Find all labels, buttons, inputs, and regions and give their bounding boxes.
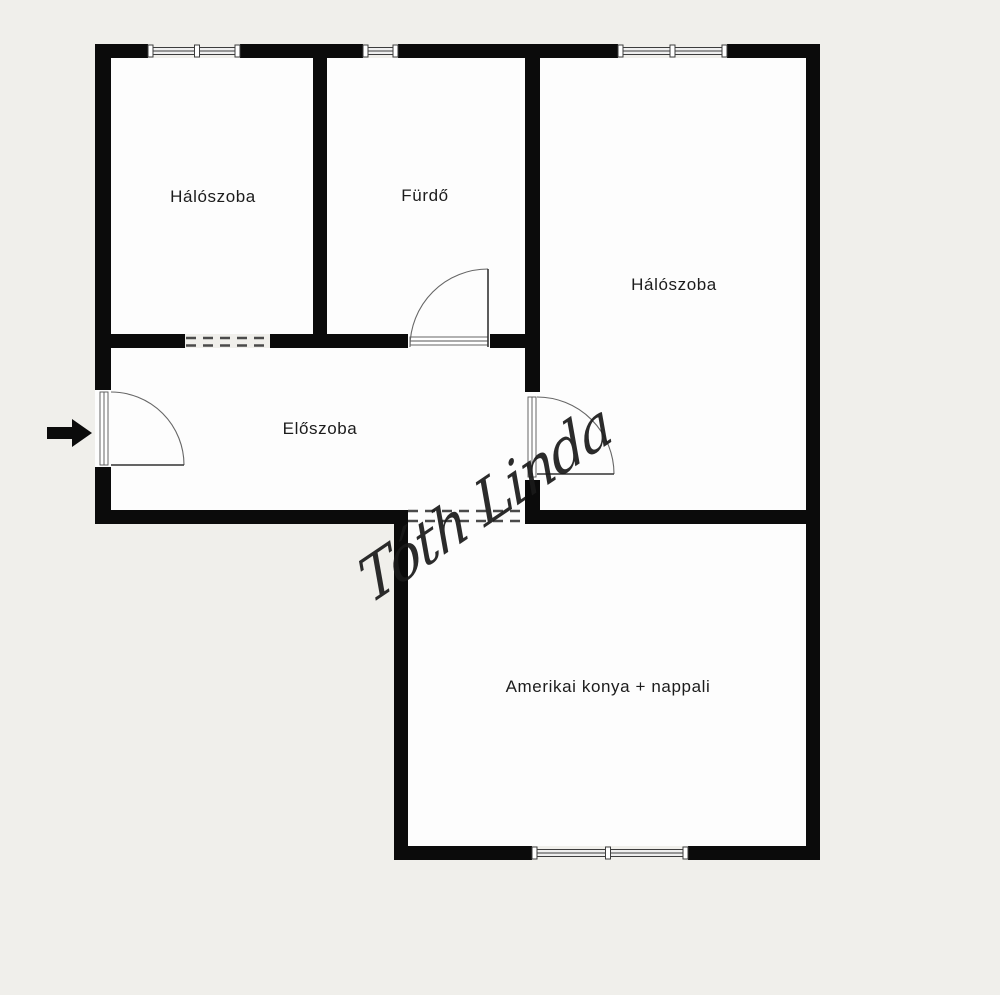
wall-bottom-1 (394, 846, 532, 860)
window-bathroom (363, 45, 398, 57)
wall-mid-2 (270, 334, 408, 348)
wall-bedroom1-bathroom (313, 44, 327, 348)
wall-right (806, 44, 820, 860)
room-label-hallway: Előszoba (283, 419, 358, 439)
room-interiors (95, 58, 806, 846)
wall-bedroom2-upper (525, 44, 540, 392)
floor-plan-canvas: Hálószoba Fürdő Hálószoba Előszoba Ameri… (0, 0, 1000, 995)
room-label-bathroom: Fürdő (401, 186, 448, 206)
wall-hallway-bottom (95, 510, 408, 524)
wall-top-3 (398, 44, 618, 58)
window-bedroom-1 (148, 45, 240, 57)
opening-bedroom-1-hallway (186, 338, 270, 346)
room-label-bedroom-2: Hálószoba (631, 275, 717, 295)
wall-bottom-2 (688, 846, 820, 860)
window-living-kitchen (532, 847, 688, 859)
room-label-living-kitchen: Amerikai konya + nappali (506, 677, 711, 697)
window-bedroom-2 (618, 45, 727, 57)
wall-bedroom2-bottom (540, 510, 806, 524)
wall-top-2 (240, 44, 363, 58)
wall-mid-1 (95, 334, 185, 348)
room-label-bedroom-1: Hálószoba (170, 187, 256, 207)
entrance-arrow-icon (47, 419, 92, 447)
